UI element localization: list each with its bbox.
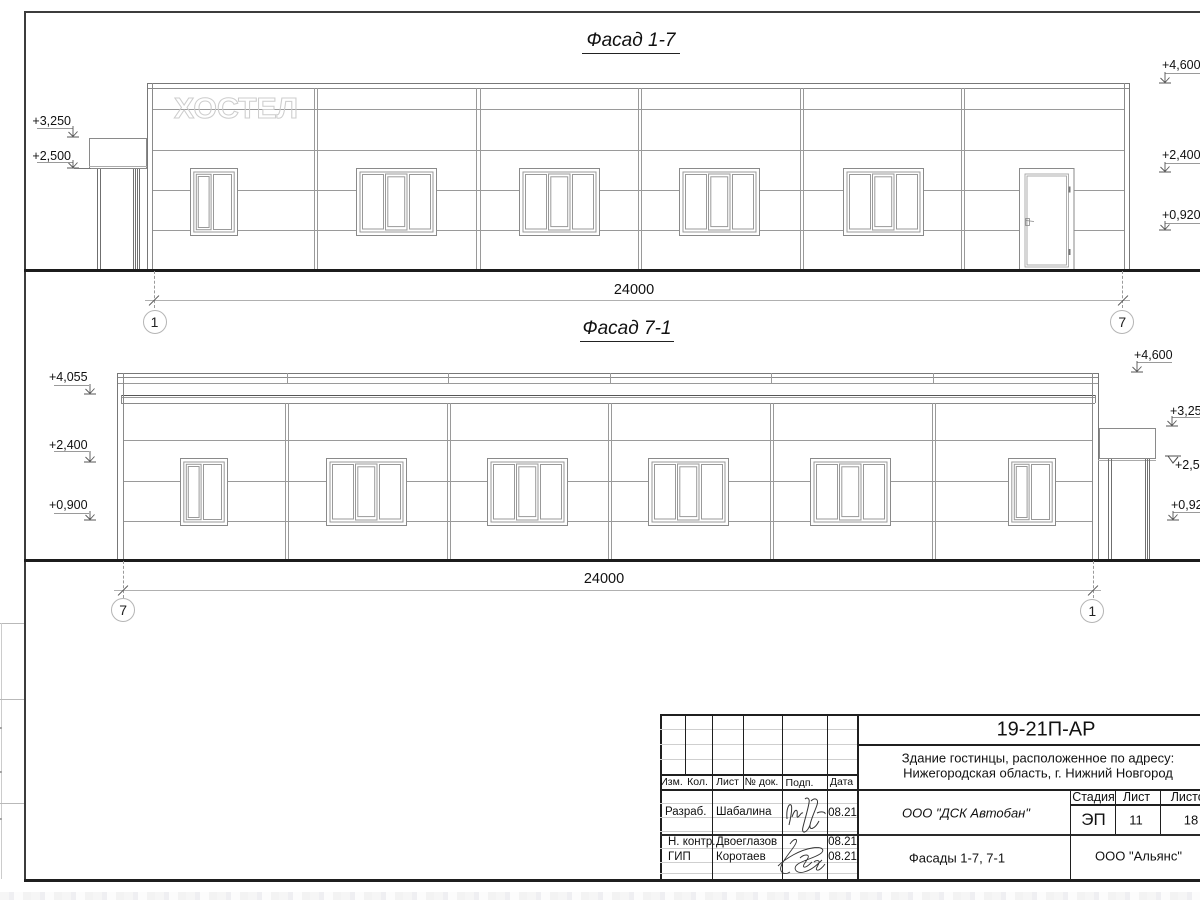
svg-text:ХОСТЕЛ: ХОСТЕЛ <box>174 93 298 124</box>
